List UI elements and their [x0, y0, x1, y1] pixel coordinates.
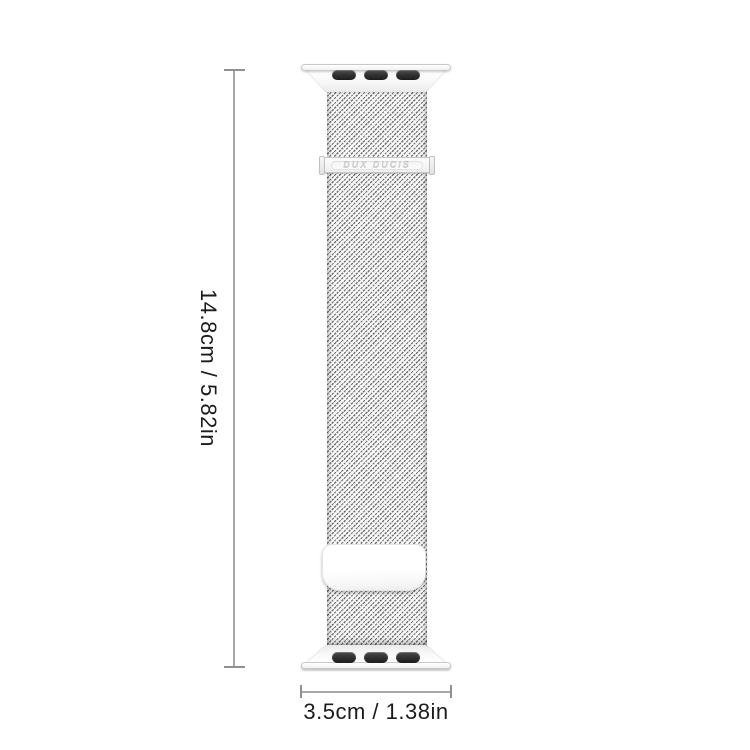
lug-slot: [332, 70, 356, 81]
keeper-end-tab: [429, 156, 435, 175]
brand-keeper: DUX DUCIS: [320, 157, 434, 173]
bottom-lug-bar: [301, 662, 451, 669]
width-dimension-label: 3.5cm / 1.38in: [303, 699, 448, 725]
height-dimension-top-cap: [224, 69, 245, 71]
lug-slot: [396, 70, 420, 81]
width-dimension-right-cap: [450, 685, 452, 698]
height-dimension-bottom-cap: [224, 666, 245, 668]
lug-slot: [396, 652, 420, 663]
lug-slot: [364, 652, 388, 663]
product-dimension-image: 14.8cm / 5.82in DUX DUCIS 3.5cm / 1.38in: [0, 0, 750, 750]
height-dimension-line: [233, 70, 235, 666]
width-dimension-line: [300, 691, 452, 693]
height-dimension-label: 14.8cm / 5.82in: [195, 289, 221, 447]
lug-slot: [332, 652, 356, 663]
keeper-panel: DUX DUCIS: [331, 161, 423, 170]
keeper-end-tab: [319, 156, 325, 175]
lug-slot: [364, 70, 388, 81]
width-dimension-left-cap: [300, 685, 302, 698]
magnetic-clasp-plate: [322, 544, 426, 591]
brand-label: DUX DUCIS: [343, 161, 411, 170]
